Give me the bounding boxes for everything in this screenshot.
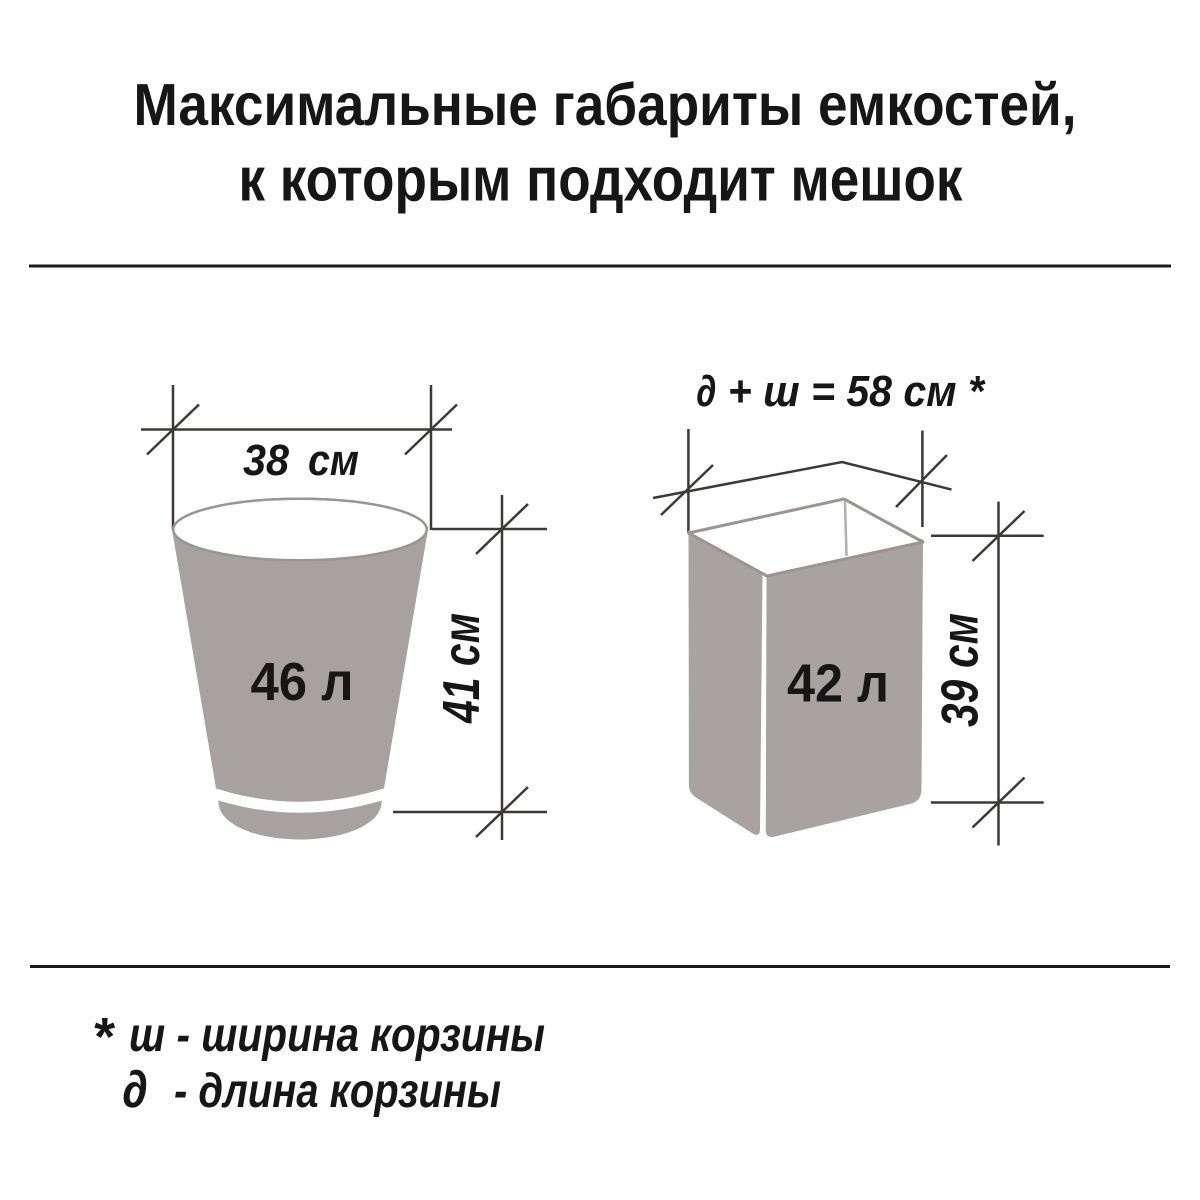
svg-text:46 л: 46 л bbox=[251, 652, 354, 712]
svg-text:∂ + ш = 58 см *: ∂ + ш = 58 см * bbox=[696, 367, 986, 416]
svg-text:38: 38 bbox=[243, 436, 289, 485]
svg-text:ш - ширина корзины: ш - ширина корзины bbox=[129, 1009, 545, 1062]
svg-text:см: см bbox=[308, 436, 359, 485]
svg-text:к которым подходит мешок: к которым подходит мешок bbox=[239, 146, 964, 215]
svg-text:∂: ∂ bbox=[122, 1061, 148, 1119]
svg-text:*: * bbox=[92, 1007, 116, 1067]
svg-text:42 л: 42 л bbox=[787, 654, 889, 714]
svg-text:39 см: 39 см bbox=[932, 613, 990, 727]
svg-text:Максимальные габариты емкостей: Максимальные габариты емкостей, bbox=[134, 72, 1077, 138]
svg-text:41 см: 41 см bbox=[433, 613, 491, 724]
svg-text:- длина корзины: - длина корзины bbox=[174, 1065, 501, 1118]
